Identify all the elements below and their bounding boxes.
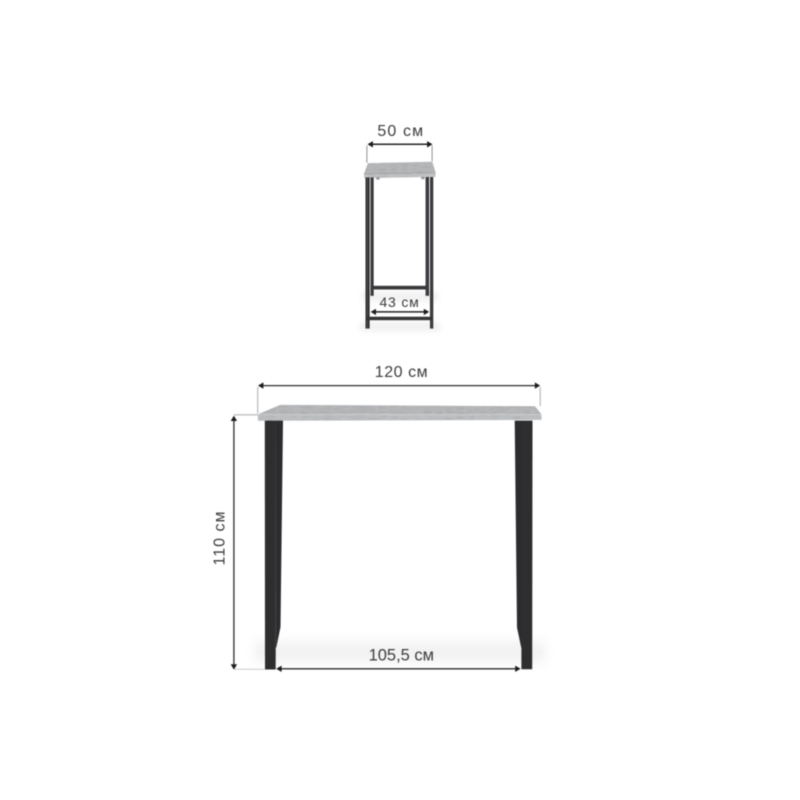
svg-text:43 см: 43 см xyxy=(379,294,419,310)
svg-text:50 см: 50 см xyxy=(377,123,424,140)
svg-text:120 см: 120 см xyxy=(375,364,428,381)
svg-text:105,5 см: 105,5 см xyxy=(369,647,434,665)
svg-text:110 см: 110 см xyxy=(212,511,229,566)
